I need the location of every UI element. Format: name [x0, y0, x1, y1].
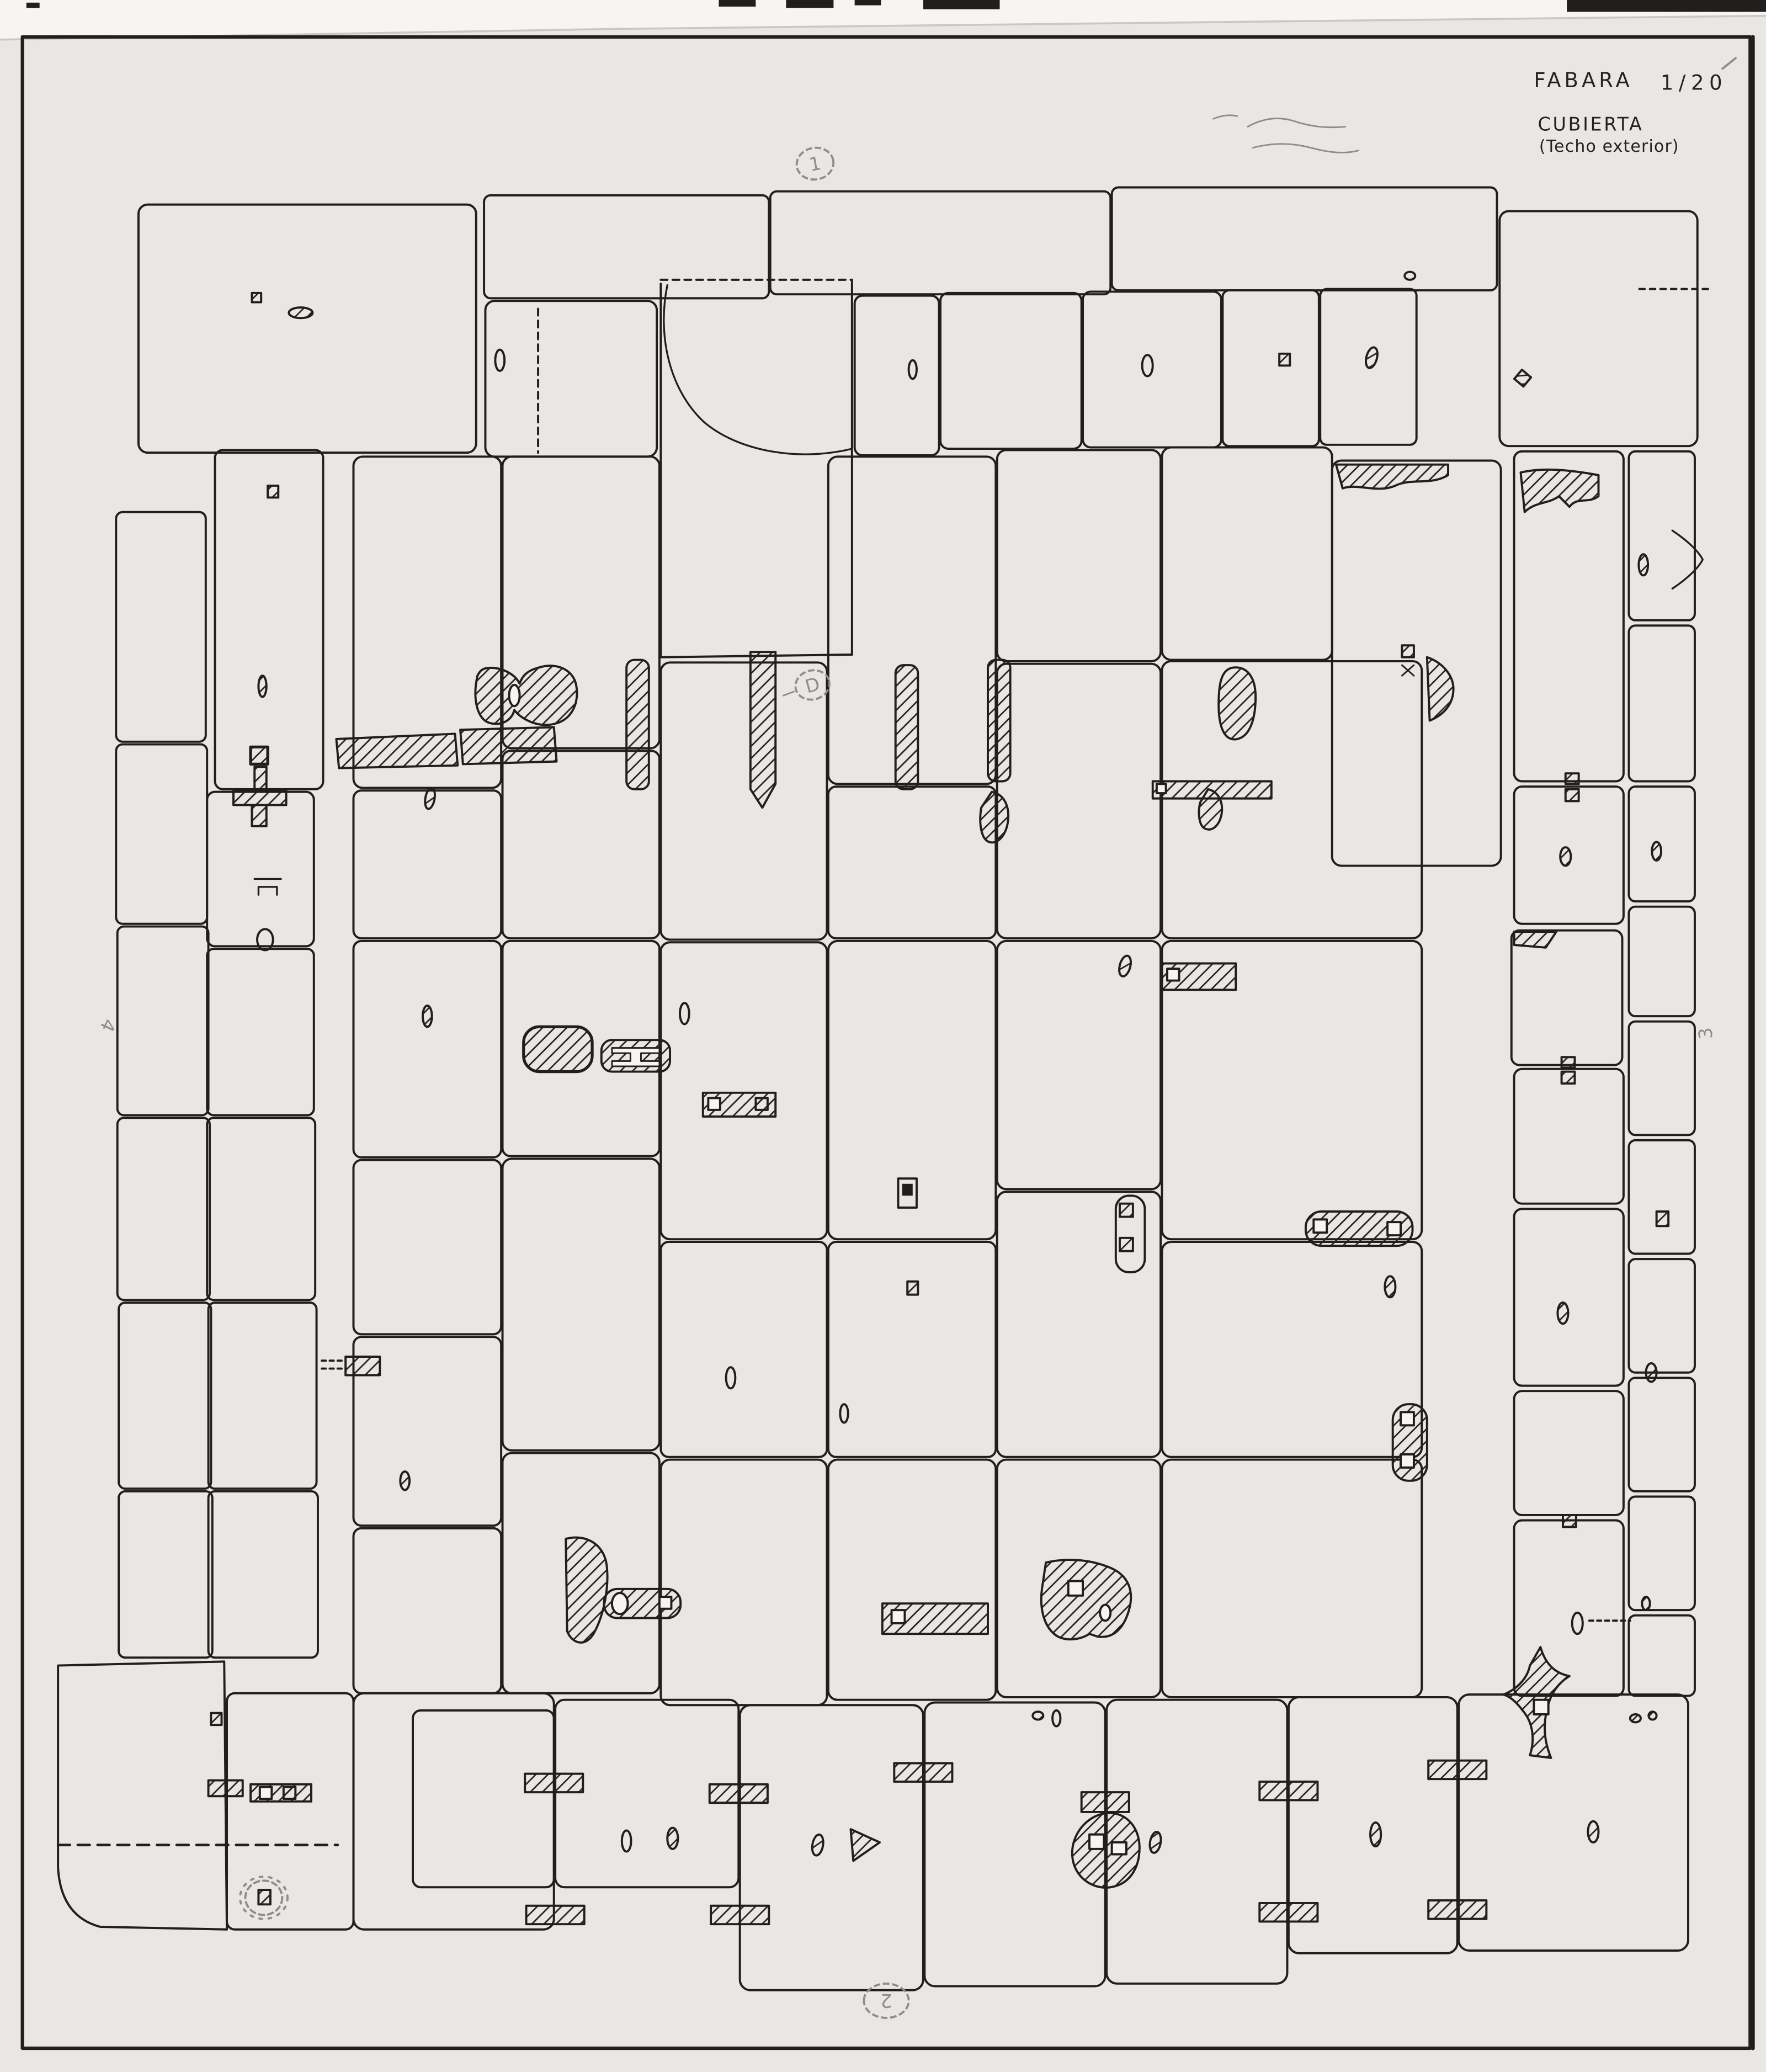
dowel-hole	[1402, 645, 1414, 657]
dowel-hole	[1117, 954, 1132, 977]
dowel-hole	[840, 1404, 848, 1422]
stone	[353, 1528, 501, 1693]
damage-patch	[1041, 1560, 1131, 1639]
clamp-cutting	[1428, 1761, 1486, 1779]
pencil-glyph: D	[803, 673, 822, 697]
dowel-hole	[1557, 1303, 1568, 1324]
dowel-hole	[211, 1713, 221, 1725]
pencil-scribble	[1253, 144, 1358, 153]
sheet-subtitle: CUBIERTA	[1538, 114, 1644, 135]
dowel-hole	[258, 1890, 270, 1904]
stone	[997, 450, 1161, 661]
dowel-hole	[400, 1471, 409, 1490]
damage-patch	[1520, 470, 1598, 512]
pi-mark	[258, 887, 276, 895]
dowel-hole	[1112, 1842, 1126, 1855]
stone	[413, 1710, 554, 1887]
damage-patch	[850, 1829, 880, 1861]
stone	[353, 1160, 501, 1335]
clamp-cutting	[711, 1906, 769, 1924]
stone	[661, 1242, 827, 1457]
edge-pinch-mark	[1672, 530, 1703, 588]
dowel-hole	[1566, 789, 1579, 801]
dowel-hole	[258, 676, 266, 697]
dowel-hole	[495, 350, 504, 371]
dowel-hole	[708, 1098, 720, 1110]
dowel-hole	[612, 1593, 628, 1614]
dowel-hole	[268, 486, 278, 498]
clamp-cutting	[524, 1027, 592, 1071]
stone	[855, 296, 939, 455]
dowel-hole	[1157, 784, 1166, 793]
dowel-socket	[251, 747, 268, 764]
stone	[58, 1661, 227, 1929]
stone	[661, 662, 827, 939]
stone	[209, 1491, 318, 1657]
dowel-hole	[1313, 1219, 1327, 1232]
dowel-hole	[289, 307, 312, 318]
clamp-cutting	[526, 1906, 584, 1924]
clamp-cutting	[1259, 1903, 1317, 1921]
damage-patch	[566, 1538, 607, 1643]
stone	[116, 745, 207, 924]
dowel-hole	[1572, 1613, 1583, 1634]
damage-patch	[460, 727, 556, 764]
stone	[1222, 290, 1318, 446]
stone	[215, 450, 323, 789]
dowel-hole	[1148, 1831, 1162, 1853]
clamp-cutting	[254, 767, 267, 789]
damage-patch	[626, 660, 649, 789]
dowel-hole	[909, 360, 917, 379]
scan-artifact	[1567, 0, 1766, 12]
dowel-hole	[1052, 1710, 1060, 1726]
clamp-cutting	[1082, 1792, 1129, 1812]
stone	[116, 512, 206, 742]
orientation-marks: 12D43	[95, 145, 1716, 2018]
dowel-hole	[1657, 1212, 1669, 1226]
damage-patch	[1219, 667, 1256, 739]
stone	[1629, 1616, 1694, 1696]
stone	[1162, 1242, 1422, 1457]
dowel-hole	[1387, 1222, 1401, 1235]
stone	[119, 1491, 212, 1657]
dowel-hole	[1370, 1823, 1381, 1846]
dowel-hole	[1560, 847, 1571, 865]
dowel-hole	[1652, 842, 1661, 860]
damage-patch	[336, 734, 458, 768]
damage-patch	[988, 660, 1010, 782]
stone	[207, 1118, 315, 1300]
damage-patch	[980, 792, 1008, 843]
stone	[209, 1303, 317, 1489]
dowel-hole	[252, 293, 261, 302]
stone	[353, 941, 501, 1157]
stone	[207, 949, 314, 1115]
damage-patch	[751, 652, 775, 807]
dowel-hole	[1534, 1700, 1548, 1714]
dowel-hole	[1562, 1057, 1575, 1067]
dowel-hole	[1142, 355, 1153, 376]
stone	[828, 1460, 996, 1700]
break-line	[664, 285, 852, 454]
dowel-hole	[1648, 1712, 1656, 1719]
dowel-hole	[726, 1367, 736, 1388]
scanned-sheet: 12D43 FABARA 1/20 CUBIERTA (Techo exteri…	[0, 0, 1766, 2072]
damage-patch	[1072, 1813, 1140, 1888]
dowel-hole	[1639, 554, 1648, 575]
stone	[997, 1192, 1161, 1457]
dowel-hole	[1120, 1238, 1133, 1251]
pencil-glyph: 1	[807, 152, 823, 176]
broken-stone-outline	[661, 280, 852, 657]
dowel-hole	[1033, 1712, 1043, 1719]
pencil-tick	[784, 692, 794, 695]
dowel-hole	[756, 1098, 768, 1110]
dowel-hole	[423, 1006, 432, 1027]
dowel-hole	[1167, 969, 1179, 981]
stone	[1629, 1378, 1694, 1491]
scan-artifact	[719, 0, 756, 7]
dowel-hole	[1566, 773, 1579, 784]
clamp-cutting	[894, 1763, 952, 1781]
dowel-hole	[1100, 1605, 1110, 1621]
orientation-mark-3: 3	[1694, 1027, 1717, 1040]
stone	[740, 1705, 923, 1990]
stone	[1514, 1209, 1624, 1385]
orientation-mark-2: 2	[864, 1984, 908, 2018]
dowel-hole	[892, 1610, 905, 1623]
sheet-subtitle-detail: (Techo exterior)	[1539, 137, 1679, 156]
dowel-hole	[1642, 1597, 1650, 1610]
pencil-glyph: 2	[880, 1990, 892, 2011]
dowel-hole	[284, 1787, 296, 1799]
stone	[1629, 625, 1694, 781]
stone	[828, 1242, 996, 1457]
dowel-hole	[680, 1003, 689, 1024]
stone	[1162, 448, 1332, 660]
clamp-cutting	[1153, 782, 1272, 799]
dowel-hole	[1563, 1515, 1576, 1527]
clamp-cutting	[252, 805, 266, 826]
dowel-hole	[1405, 272, 1415, 280]
dowel-hole	[622, 1830, 631, 1851]
mason-mark-x	[1402, 665, 1414, 676]
plan-shapes	[0, 0, 1766, 2048]
stone	[1514, 1069, 1624, 1204]
scan-artifact	[923, 0, 1000, 9]
damage-patch	[475, 666, 577, 725]
dowel-hole	[811, 1834, 825, 1856]
damage-patch	[1427, 657, 1454, 721]
stone	[119, 1303, 211, 1489]
orientation-mark-1: 1	[794, 145, 836, 182]
stone	[661, 942, 827, 1239]
stone	[485, 301, 657, 456]
stone	[1629, 451, 1694, 620]
border-frame	[23, 37, 1751, 2048]
stone	[1514, 1391, 1624, 1515]
stone	[139, 205, 476, 453]
stone	[1629, 787, 1694, 901]
stone-plan-drawing: 12D43 FABARA 1/20 CUBIERTA (Techo exteri…	[0, 0, 1766, 2072]
stone	[940, 293, 1082, 449]
clamp-cutting	[209, 1781, 243, 1797]
stone	[503, 1159, 659, 1450]
stone	[997, 941, 1161, 1189]
pencil-glyph: 3	[1694, 1027, 1717, 1040]
sheet-title: FABARA	[1534, 68, 1632, 92]
clamp-cutting	[525, 1774, 583, 1792]
stone	[1629, 1022, 1694, 1135]
stone	[1512, 931, 1623, 1065]
dowel-hole	[1401, 1454, 1414, 1468]
clamp-cutting	[1259, 1782, 1317, 1800]
dowel-socket	[902, 1184, 913, 1196]
stone	[1162, 1460, 1422, 1697]
clamp-cutting	[1428, 1900, 1486, 1919]
stone	[353, 1693, 554, 1930]
clamp-cutting	[710, 1784, 768, 1803]
stone	[353, 790, 501, 938]
dowel-hole	[1385, 1276, 1395, 1297]
dowel-hole	[667, 1828, 678, 1849]
dowel-hole	[1630, 1714, 1641, 1722]
dowel-hole	[1089, 1835, 1104, 1849]
stone	[1459, 1694, 1688, 1951]
stone	[1629, 907, 1694, 1016]
stone	[1629, 1259, 1694, 1373]
scan-artifact	[26, 3, 40, 8]
pencil-scribble	[1248, 119, 1345, 127]
damage-patch	[1514, 932, 1556, 948]
stone	[661, 1460, 827, 1706]
dowel-hole	[907, 1282, 918, 1295]
dowel-hole	[1514, 370, 1531, 386]
dowel-hole	[1588, 1821, 1598, 1842]
stone	[997, 664, 1161, 938]
dowel-hole	[1364, 346, 1379, 369]
dowel-hole	[1120, 1204, 1133, 1217]
scan-artifact	[786, 0, 833, 8]
stone	[1629, 1496, 1694, 1610]
stone	[828, 787, 996, 938]
pencil-scribble	[1214, 115, 1237, 119]
stone	[118, 927, 209, 1115]
dowel-hole	[1646, 1363, 1657, 1382]
stone	[1112, 188, 1497, 291]
dowel-hole	[509, 685, 519, 706]
clamp-cutting	[345, 1357, 380, 1375]
clamp-cutting	[233, 790, 286, 805]
damage-patch	[1336, 465, 1448, 489]
dowel-hole	[1562, 1072, 1575, 1084]
stone	[1629, 1140, 1694, 1254]
dowel-hole	[1401, 1412, 1414, 1425]
dowel-hole	[1279, 354, 1290, 366]
stone	[484, 195, 769, 299]
stone	[1499, 211, 1697, 447]
scan-artifact	[855, 0, 881, 6]
sheet-scale: 1/20	[1661, 71, 1727, 95]
pencil-tick	[1722, 58, 1736, 68]
dowel-hole	[659, 1597, 672, 1609]
stone	[118, 1118, 210, 1300]
dowel-hole	[1068, 1581, 1083, 1596]
damage-patch	[896, 665, 918, 789]
dowel-hole	[260, 1787, 272, 1799]
